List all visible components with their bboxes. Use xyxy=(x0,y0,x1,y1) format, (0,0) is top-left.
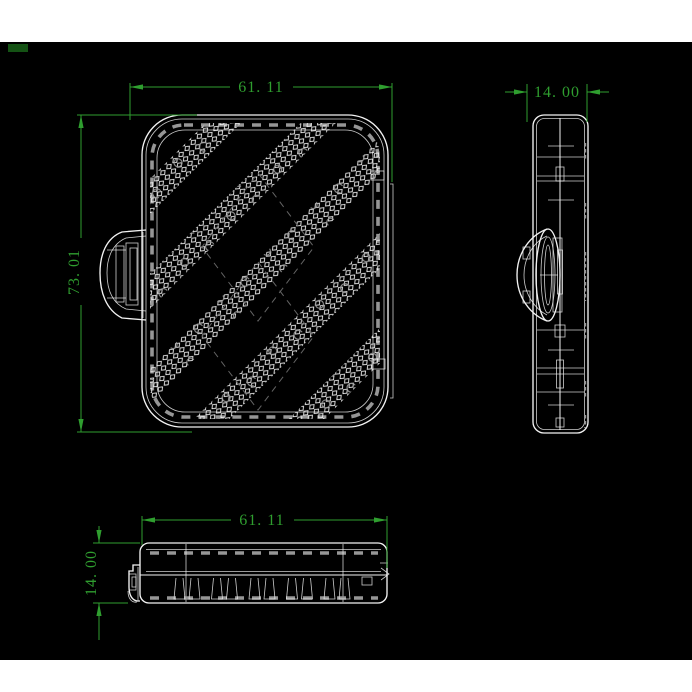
cad-drawing: 61. 11 73. 01 14. 00 61. 11 xyxy=(0,0,692,692)
dim-front-width-value: 61. 11 xyxy=(238,79,283,96)
dim-bottom-width-value: 61. 11 xyxy=(239,512,284,529)
dim-side-width-value: 14. 00 xyxy=(534,84,580,101)
cad-viewport: 61. 11 73. 01 14. 00 61. 11 xyxy=(0,0,692,692)
dim-front-height-value: 73. 01 xyxy=(66,249,83,295)
corner-marker xyxy=(8,44,28,52)
dim-bottom-height-value: 14. 00 xyxy=(83,550,100,596)
